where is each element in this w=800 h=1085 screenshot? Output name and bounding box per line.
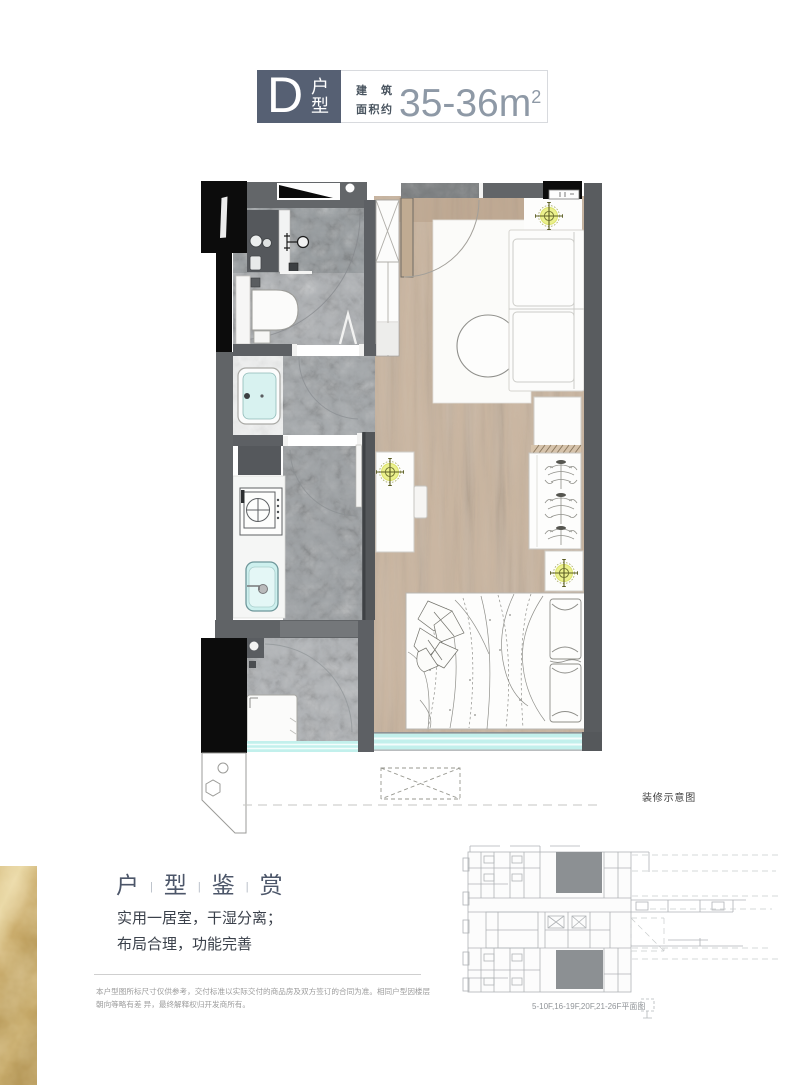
svg-text:5-10F,16-19F,20F,21-26F平面图: 5-10F,16-19F,20F,21-26F平面图 [532,1002,645,1011]
svg-text:装修示意图: 装修示意图 [642,791,696,804]
